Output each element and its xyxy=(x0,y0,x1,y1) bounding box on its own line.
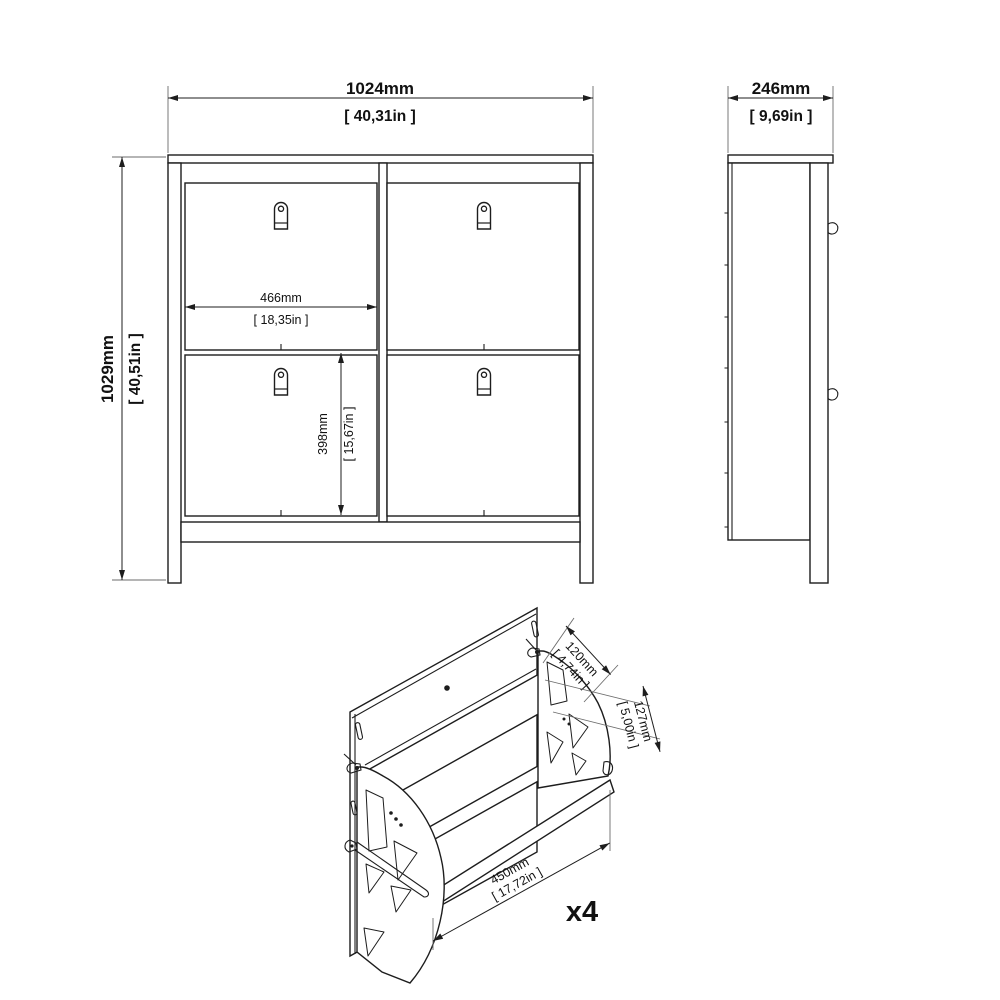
front-height-dimension: 1029mm [ 40,51in ] xyxy=(98,157,166,580)
front-bottom-rail xyxy=(181,522,580,542)
compartment-height-mm-label: 398mm xyxy=(316,413,330,455)
door-handle-icon xyxy=(275,203,288,230)
door-handle-icon xyxy=(478,369,491,396)
door-handle-icon xyxy=(478,203,491,230)
shoe-cabinet-technical-drawing: 1024mm [ 40,31in ] 1029mm [ 40,51in ] 46… xyxy=(0,0,1000,1000)
side-depth-dimension: 246mm [ 9,69in ] xyxy=(728,79,833,153)
front-width-dimension: 1024mm [ 40,31in ] xyxy=(168,79,593,153)
compartment-width-in-label: [ 18,35in ] xyxy=(254,313,309,327)
front-view: 1024mm [ 40,31in ] 1029mm [ 40,51in ] 46… xyxy=(98,79,593,583)
front-height-in-label: [ 40,51in ] xyxy=(127,333,144,405)
flap-quantity-label: x4 xyxy=(566,896,598,928)
door-handle-icon xyxy=(275,369,288,396)
front-width-mm-label: 1024mm xyxy=(346,79,414,98)
technical-drawing-page: 1024mm [ 40,31in ] 1029mm [ 40,51in ] 46… xyxy=(0,0,1000,1000)
front-width-in-label: [ 40,31in ] xyxy=(344,108,416,125)
side-front-leg xyxy=(810,163,828,583)
front-left-leg xyxy=(168,163,181,583)
side-depth-in-label: [ 9,69in ] xyxy=(750,108,813,125)
side-handle-hooks xyxy=(828,223,838,400)
front-center-stile xyxy=(379,163,387,522)
front-right-leg xyxy=(580,163,593,583)
flap-detail-view: 120mm [ 4,74in ] 127mm [ 5,00in ] 450mm … xyxy=(344,608,660,983)
compartment-width-mm-label: 466mm xyxy=(260,291,302,305)
side-view: 246mm [ 9,69in ] xyxy=(725,79,838,583)
side-body-panel xyxy=(728,163,810,540)
front-top-panel xyxy=(168,155,593,163)
front-height-mm-label: 1029mm xyxy=(98,335,117,403)
side-top-panel xyxy=(728,155,833,163)
side-depth-mm-label: 246mm xyxy=(752,79,811,98)
compartment-height-in-label: [ 15,67in ] xyxy=(342,407,356,462)
